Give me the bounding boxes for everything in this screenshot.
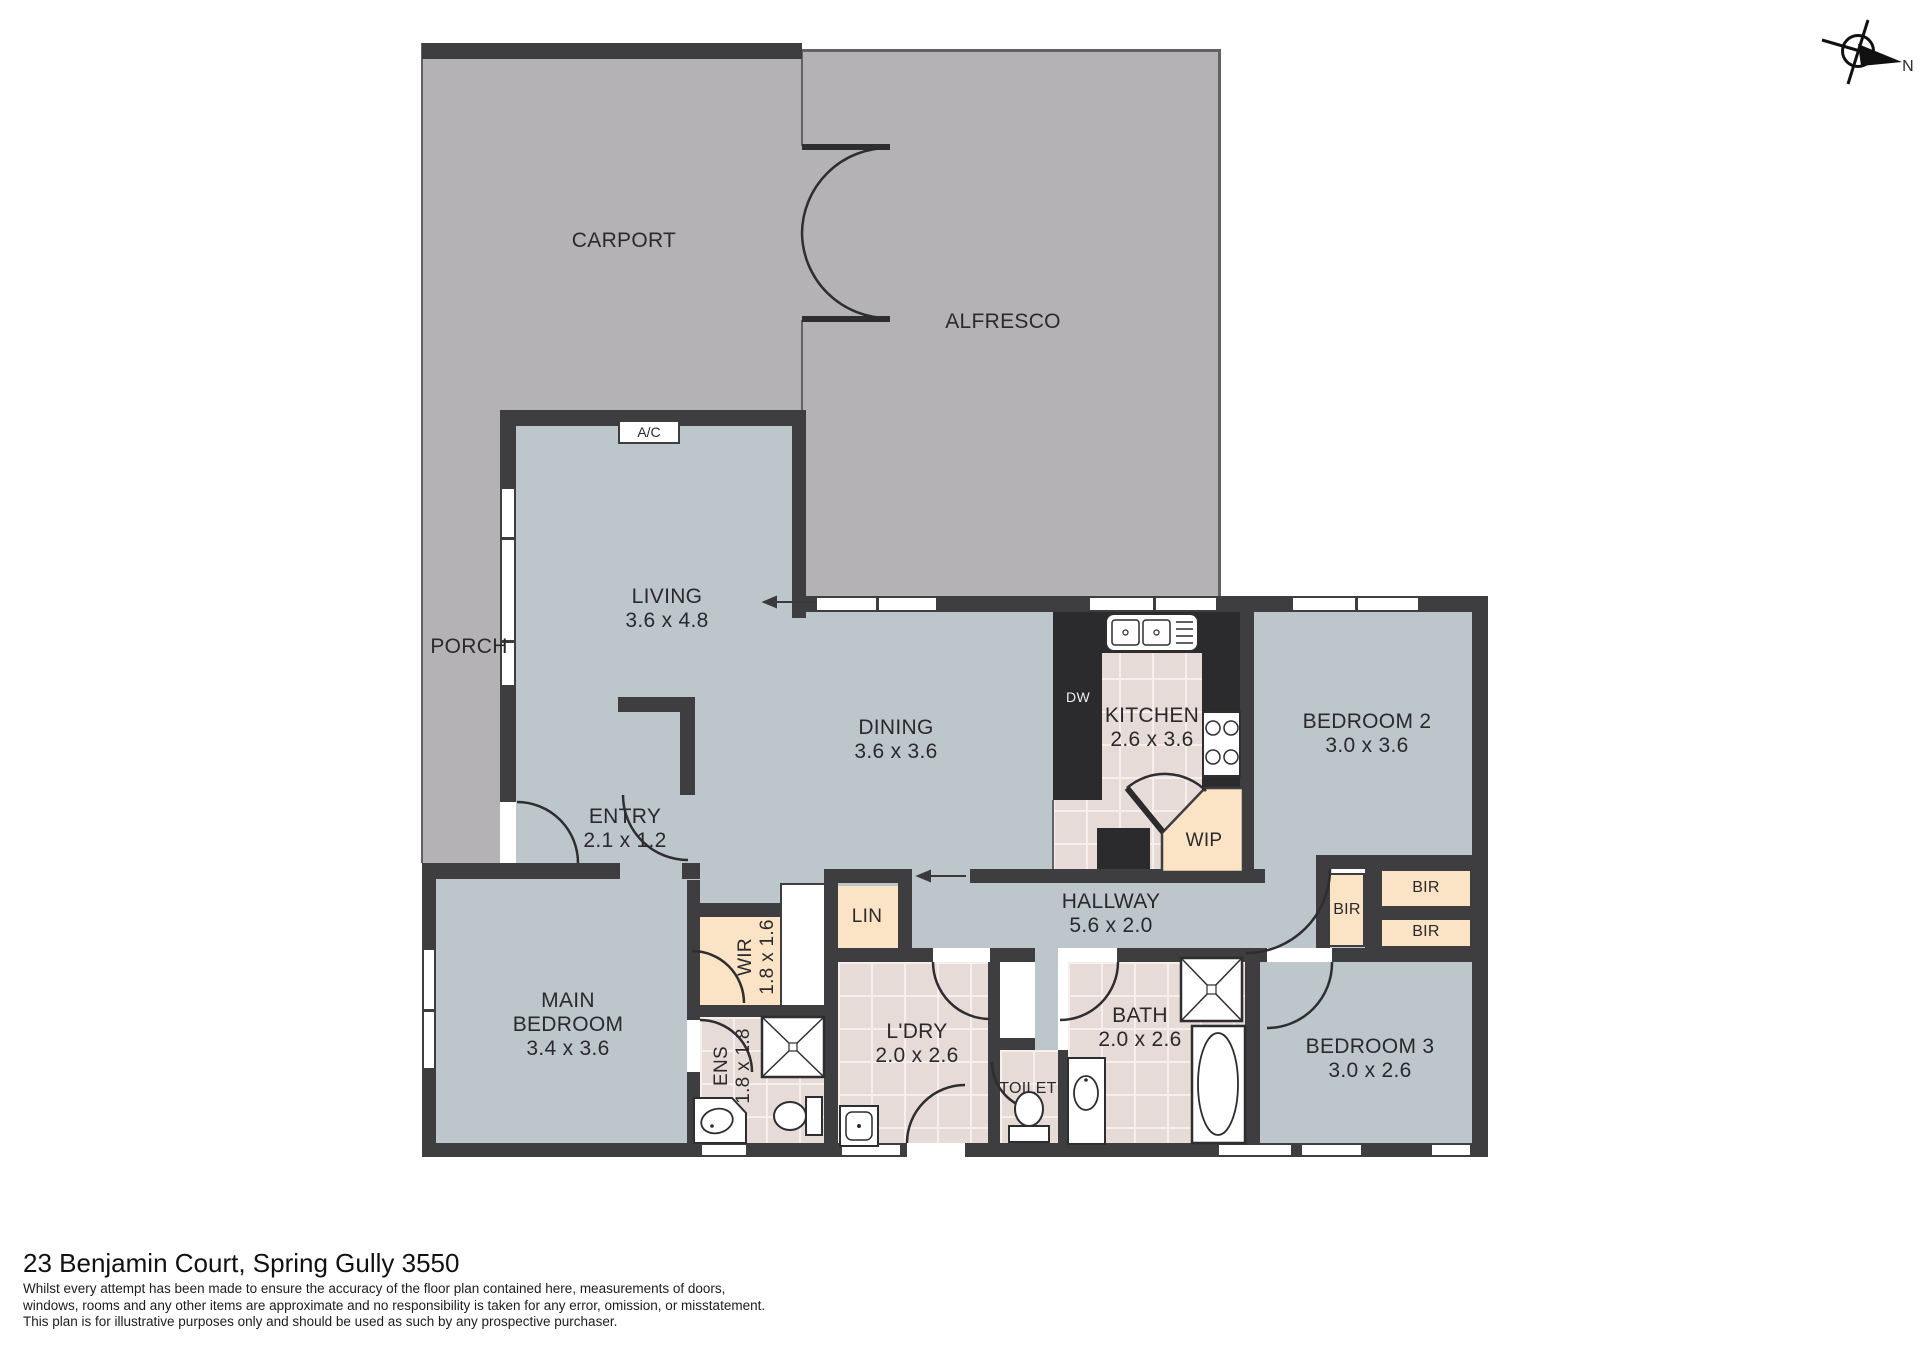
- closet-label-bir-bottom: BIR: [1412, 923, 1440, 941]
- room-label-dining: DINING 3.6 x 3.6: [854, 716, 937, 764]
- bath-tiles: [1068, 962, 1245, 1143]
- room-label-bedroom3: BEDROOM 3 3.0 x 2.6: [1306, 1035, 1435, 1083]
- window: [815, 596, 938, 612]
- kitchen-counter-left: [1053, 612, 1102, 800]
- wall: [824, 869, 838, 1157]
- closet-label-bir-top: BIR: [1412, 879, 1440, 897]
- wall: [422, 43, 802, 59]
- wall: [422, 1143, 700, 1157]
- wall: [990, 948, 1035, 962]
- window: [1300, 1143, 1363, 1157]
- carport-left-edge: [421, 43, 423, 863]
- wall: [898, 883, 912, 948]
- wall: [1330, 855, 1488, 869]
- wall: [687, 1005, 824, 1017]
- room-label-main-bedroom: MAIN BEDROOM 3.4 x 3.6: [513, 989, 624, 1061]
- wall: [1316, 855, 1330, 948]
- window: [1088, 596, 1218, 612]
- room-label-kitchen: KITCHEN 2.6 x 3.6: [1105, 704, 1199, 752]
- kitchen-counter-bottom: [1097, 828, 1150, 872]
- window: [700, 1143, 748, 1157]
- wall: [680, 697, 695, 795]
- carport-alfresco-divider-lower: [801, 320, 803, 410]
- wall: [824, 948, 933, 962]
- wall: [1472, 596, 1488, 1157]
- room-label-ldry: L'DRY 2.0 x 2.6: [875, 1020, 958, 1068]
- wall: [422, 1070, 436, 1157]
- dishwasher-label: DW: [1066, 689, 1090, 705]
- wall: [682, 863, 700, 879]
- wall: [500, 410, 516, 487]
- compass-north-label: N: [1902, 58, 1914, 76]
- room-label-alfresco: ALFRESCO: [945, 310, 1061, 334]
- wall: [1365, 855, 1380, 948]
- wall: [1380, 908, 1472, 918]
- wall: [965, 1143, 1217, 1157]
- room-label-bath: BATH 2.0 x 2.6: [1098, 1004, 1181, 1052]
- room-label-bedroom2: BEDROOM 2 3.0 x 3.6: [1303, 710, 1432, 758]
- disclaimer-line: This plan is for illustrative purposes o…: [23, 1314, 765, 1331]
- compass-rose-icon: [1822, 20, 1902, 84]
- wall: [988, 962, 1000, 1143]
- window: [422, 948, 436, 1070]
- disclaimer-line: windows, rooms and any other items are a…: [23, 1298, 765, 1315]
- wall: [902, 1143, 907, 1157]
- alfresco-top-edge: [802, 49, 1221, 52]
- wall: [687, 880, 700, 1020]
- wall: [422, 863, 620, 879]
- wall: [1363, 1143, 1430, 1157]
- toilet-lobby-area: [1035, 948, 1058, 1050]
- address-title: 23 Benjamin Court, Spring Gully 3550: [23, 1248, 459, 1279]
- kitchen-tile-edge: [1052, 800, 1054, 872]
- window: [1291, 596, 1420, 612]
- closet-label-bir-hall: BIR: [1333, 901, 1361, 919]
- wall: [422, 863, 436, 948]
- kitchen-counter-right: [1202, 653, 1240, 832]
- room-living-entry-area: [516, 426, 792, 863]
- wall: [1058, 1050, 1068, 1143]
- void-space: [780, 883, 824, 1017]
- disclaimer-text: Whilst every attempt has been made to en…: [23, 1281, 765, 1331]
- wall: [500, 687, 516, 802]
- room-label-living: LIVING 3.6 x 4.8: [625, 585, 708, 633]
- disclaimer-line: Whilst every attempt has been made to en…: [23, 1281, 765, 1298]
- room-carport-area: [422, 43, 802, 410]
- wall: [970, 869, 1265, 883]
- ac-unit: A/C: [618, 420, 680, 444]
- wall: [1245, 948, 1260, 1143]
- window: [840, 1143, 902, 1157]
- room-label-hallway: HALLWAY 5.6 x 2.0: [1062, 890, 1161, 938]
- room-label-wir: WIR 1.8 x 1.6: [735, 919, 779, 995]
- ac-unit-label: A/C: [637, 424, 660, 440]
- wall: [687, 903, 780, 917]
- room-label-toilet: TOILET: [999, 1080, 1057, 1098]
- alfresco-right-edge: [1218, 49, 1221, 596]
- wall: [687, 1072, 700, 1143]
- room-label-carport: CARPORT: [572, 229, 676, 253]
- room-label-entry: ENTRY 2.1 x 1.2: [583, 805, 666, 853]
- room-label-wip: WIP: [1186, 830, 1223, 852]
- wall: [792, 410, 806, 618]
- floorplan-page: A/C: [0, 0, 1920, 1358]
- kitchen-counter-top: [1102, 612, 1240, 653]
- room-label-ens: ENS 1.8 x 1.8: [711, 1028, 755, 1104]
- wall: [1240, 596, 1254, 869]
- room-label-porch: PORCH: [430, 635, 507, 659]
- window: [1217, 1143, 1293, 1157]
- window: [1430, 1143, 1472, 1157]
- wall: [1293, 1143, 1300, 1157]
- wall: [1332, 948, 1488, 962]
- room-label-lin: LIN: [852, 906, 882, 928]
- carport-alfresco-divider-upper: [801, 52, 803, 146]
